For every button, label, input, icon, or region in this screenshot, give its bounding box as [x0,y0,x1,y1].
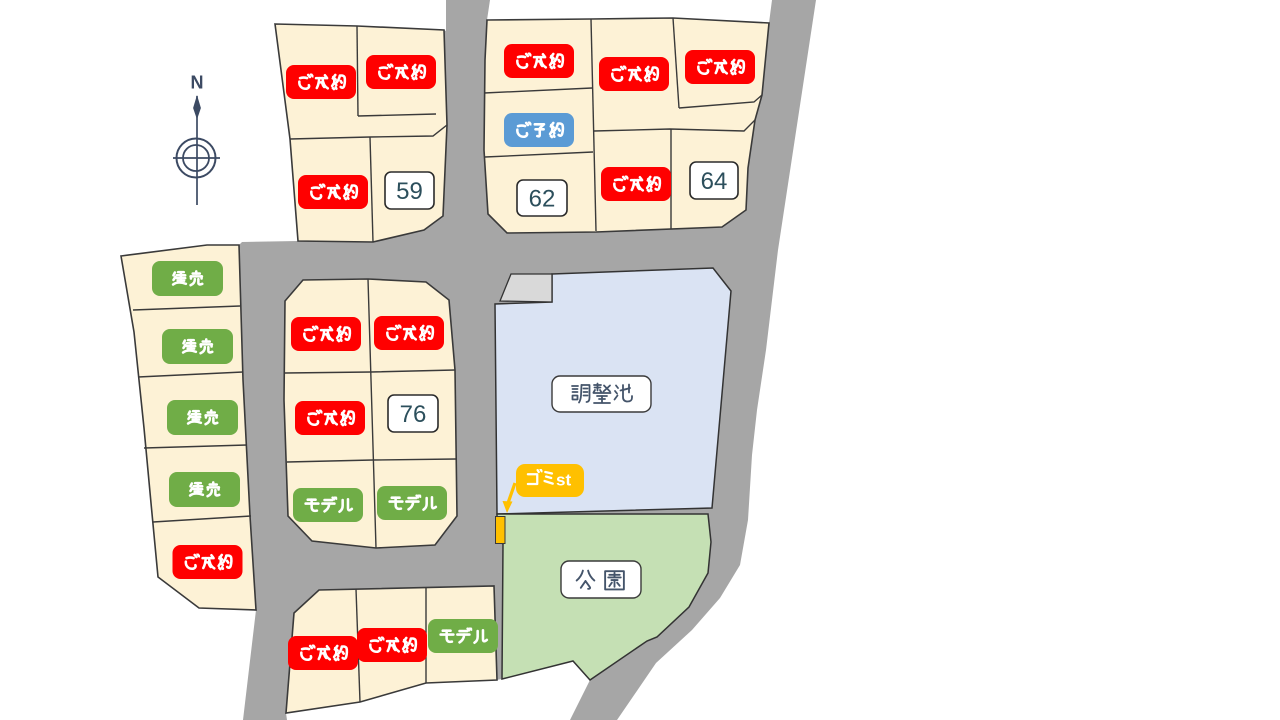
svg-text:76: 76 [400,401,427,428]
svg-text:N: N [191,73,204,93]
svg-text:59: 59 [396,178,423,205]
svg-text:64: 64 [701,168,728,195]
svg-text:st: st [556,471,571,490]
svg-text:62: 62 [529,186,556,213]
